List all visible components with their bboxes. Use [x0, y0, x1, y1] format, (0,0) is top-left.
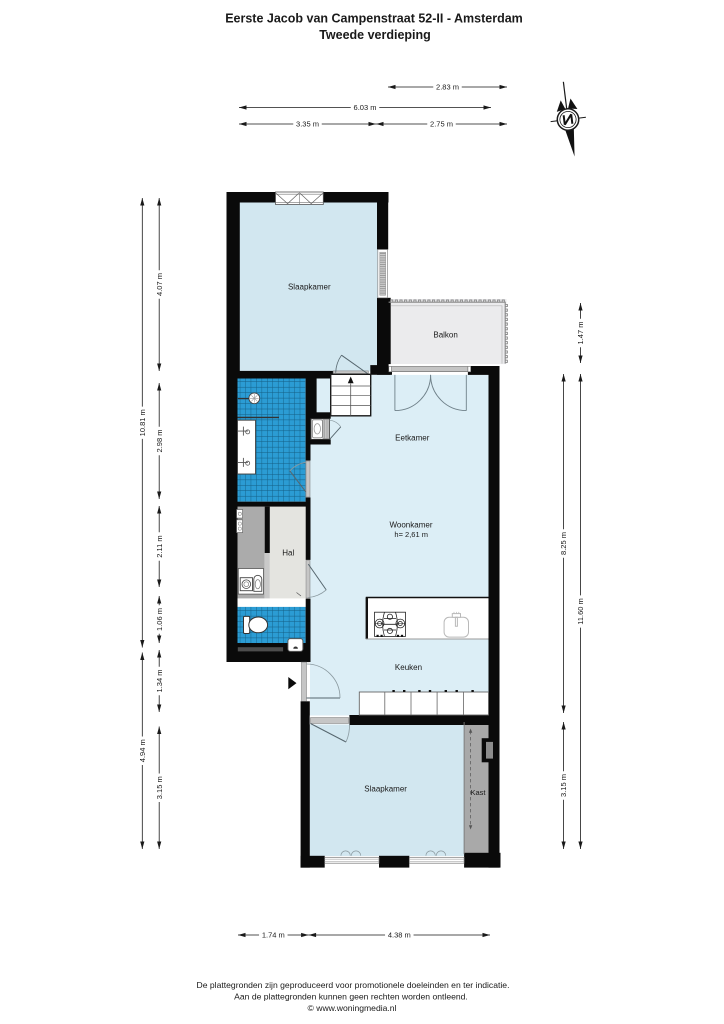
svg-text:1.34 m: 1.34 m: [155, 670, 164, 693]
svg-text:Slaapkamer: Slaapkamer: [364, 784, 407, 793]
svg-text:4.94 m: 4.94 m: [138, 739, 147, 762]
svg-text:6.03 m: 6.03 m: [354, 103, 377, 112]
svg-text:3.35 m: 3.35 m: [296, 120, 319, 129]
svg-text:11.60 m: 11.60 m: [576, 598, 585, 625]
svg-text:3.15 m: 3.15 m: [155, 776, 164, 799]
svg-text:4.38 m: 4.38 m: [388, 931, 411, 940]
svg-text:Eetkamer: Eetkamer: [395, 434, 430, 443]
svg-text:2.98 m: 2.98 m: [155, 430, 164, 453]
svg-text:3.15 m: 3.15 m: [559, 774, 568, 797]
svg-text:© www.woningmedia.nl: © www.woningmedia.nl: [308, 1003, 397, 1013]
svg-text:2.11 m: 2.11 m: [155, 535, 164, 557]
svg-text:Eerste Jacob van Campenstraat: Eerste Jacob van Campenstraat 52-II - Am…: [225, 12, 523, 26]
svg-text:h= 2,61 m: h= 2,61 m: [394, 530, 428, 539]
svg-text:Hal: Hal: [282, 549, 294, 558]
svg-text:4.07 m: 4.07 m: [155, 273, 164, 296]
svg-text:Woonkamer: Woonkamer: [390, 521, 433, 530]
svg-text:Aan de plattegronden kunnen ge: Aan de plattegronden kunnen geen rechten…: [234, 992, 468, 1002]
svg-text:Tweede verdieping: Tweede verdieping: [319, 28, 431, 42]
svg-text:Keuken: Keuken: [395, 663, 422, 672]
svg-text:1.06 m: 1.06 m: [155, 608, 164, 631]
svg-text:Slaapkamer: Slaapkamer: [288, 282, 331, 291]
svg-text:8.25 m: 8.25 m: [559, 532, 568, 555]
svg-text:De plattegronden zijn geproduc: De plattegronden zijn geproduceerd voor …: [197, 980, 510, 990]
svg-text:2.83 m: 2.83 m: [436, 83, 459, 92]
svg-text:1.74 m: 1.74 m: [262, 931, 285, 940]
svg-text:Balkon: Balkon: [433, 330, 457, 339]
svg-text:1.47 m: 1.47 m: [576, 322, 585, 345]
svg-text:Kast: Kast: [470, 788, 486, 797]
svg-text:2.75 m: 2.75 m: [430, 120, 453, 129]
svg-text:10.81 m: 10.81 m: [138, 409, 147, 436]
